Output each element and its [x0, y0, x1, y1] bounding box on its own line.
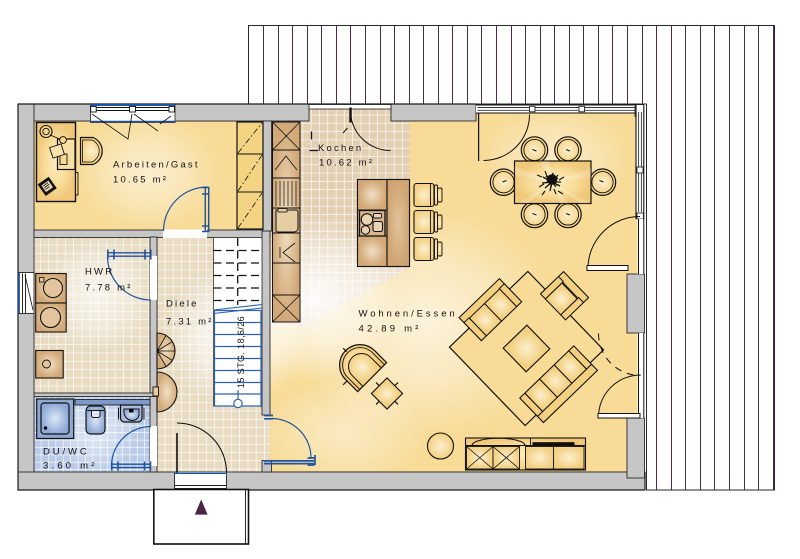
svg-text:42.89 m²: 42.89 m² — [359, 324, 422, 335]
svg-text:DU/WC: DU/WC — [43, 447, 90, 458]
svg-text:Diele: Diele — [166, 299, 199, 310]
svg-text:3.60 m²: 3.60 m² — [43, 461, 98, 472]
svg-text:15 STG. 18,6/26: 15 STG. 18,6/26 — [236, 316, 246, 388]
svg-text:Kochen: Kochen — [318, 143, 363, 154]
svg-text:10.62 m²: 10.62 m² — [319, 158, 374, 169]
svg-text:Wohnen/Essen: Wohnen/Essen — [359, 309, 458, 320]
svg-text:HWR: HWR — [85, 267, 114, 278]
svg-text:7.31 m²: 7.31 m² — [166, 317, 214, 328]
svg-text:Arbeiten/Gast: Arbeiten/Gast — [113, 160, 200, 171]
svg-text:7.78 m²: 7.78 m² — [85, 283, 133, 294]
svg-text:10.65 m²: 10.65 m² — [113, 175, 168, 186]
